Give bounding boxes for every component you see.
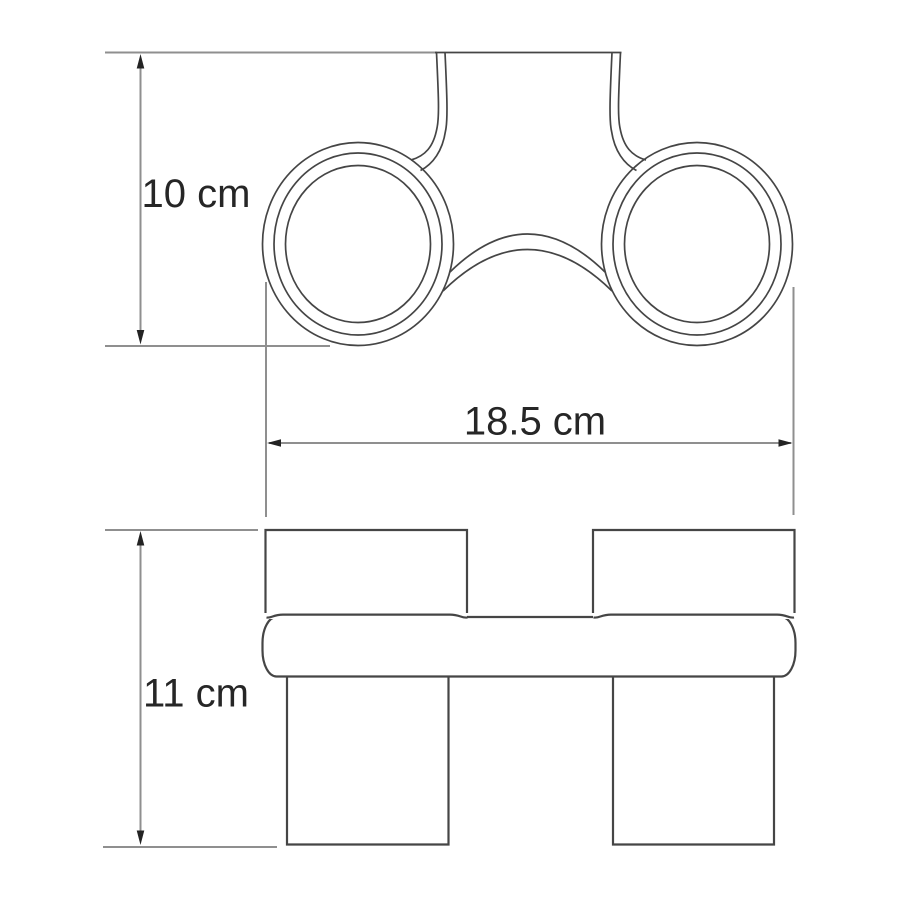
dimension-width-label: 18.5 cm bbox=[464, 400, 606, 444]
height-arrowhead-up bbox=[137, 531, 145, 546]
left-ring-inner-edge bbox=[274, 153, 442, 335]
holder-bar bbox=[263, 617, 796, 677]
dimension-width: 18.5 cm bbox=[266, 282, 794, 517]
wall-bracket-right-outer-edge bbox=[619, 53, 646, 161]
right-ring-outer-edge bbox=[602, 143, 793, 346]
right-glass-rim-fill bbox=[593, 529, 795, 619]
height-arrowhead-down bbox=[137, 831, 145, 846]
depth-arrowhead-down bbox=[137, 330, 145, 345]
left-glass-rim-fill bbox=[266, 529, 468, 619]
technical-drawing-canvas: 10 cm 18.5 cm 11 cm bbox=[0, 0, 900, 900]
dimension-depth-label: 10 cm bbox=[142, 172, 251, 216]
dimension-depth: 10 cm bbox=[105, 53, 437, 347]
dimension-height: 11 cm bbox=[103, 530, 277, 847]
technical-drawing: 10 cm 18.5 cm 11 cm bbox=[0, 0, 900, 900]
top-view bbox=[263, 53, 793, 346]
dimension-height-label: 11 cm bbox=[143, 672, 249, 716]
left-ring-opening bbox=[286, 166, 431, 323]
right-ring-inner-edge bbox=[613, 153, 781, 335]
front-view bbox=[263, 529, 796, 845]
width-arrowhead-right bbox=[779, 439, 793, 447]
width-arrowhead-left bbox=[267, 439, 281, 447]
depth-arrowhead-up bbox=[137, 54, 145, 69]
left-glass-body bbox=[287, 677, 449, 845]
right-glass-body bbox=[613, 677, 774, 845]
right-ring-opening bbox=[625, 166, 770, 323]
left-ring-outer-edge bbox=[263, 143, 454, 346]
wall-bracket-left-outer-edge bbox=[411, 53, 438, 161]
